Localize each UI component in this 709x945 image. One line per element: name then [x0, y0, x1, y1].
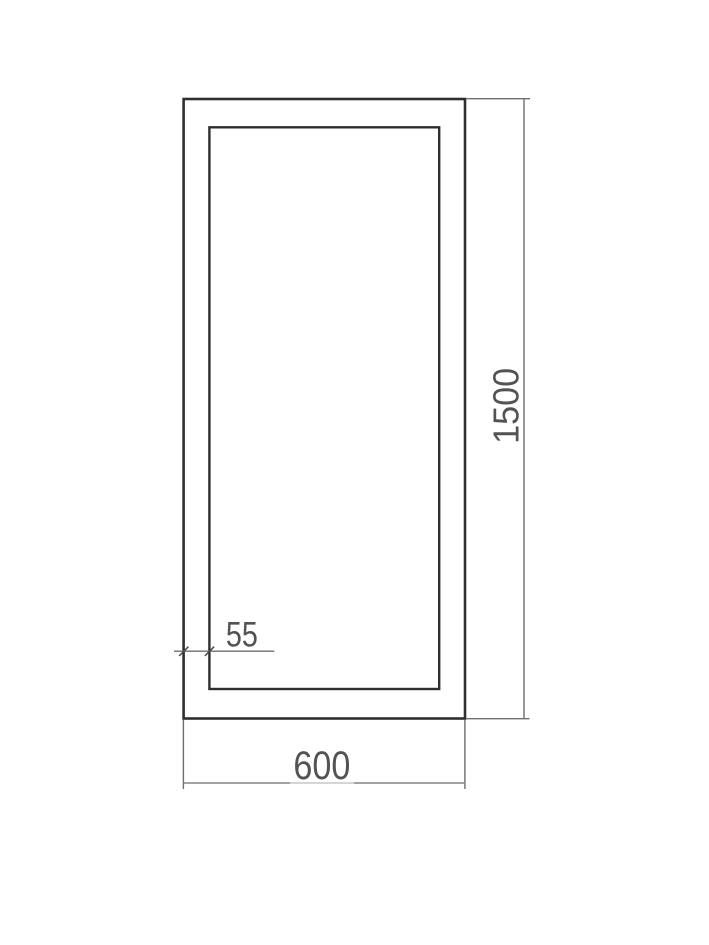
- svg-text:600: 600: [293, 744, 350, 788]
- svg-text:55: 55: [226, 615, 258, 654]
- svg-text:1500: 1500: [486, 368, 527, 444]
